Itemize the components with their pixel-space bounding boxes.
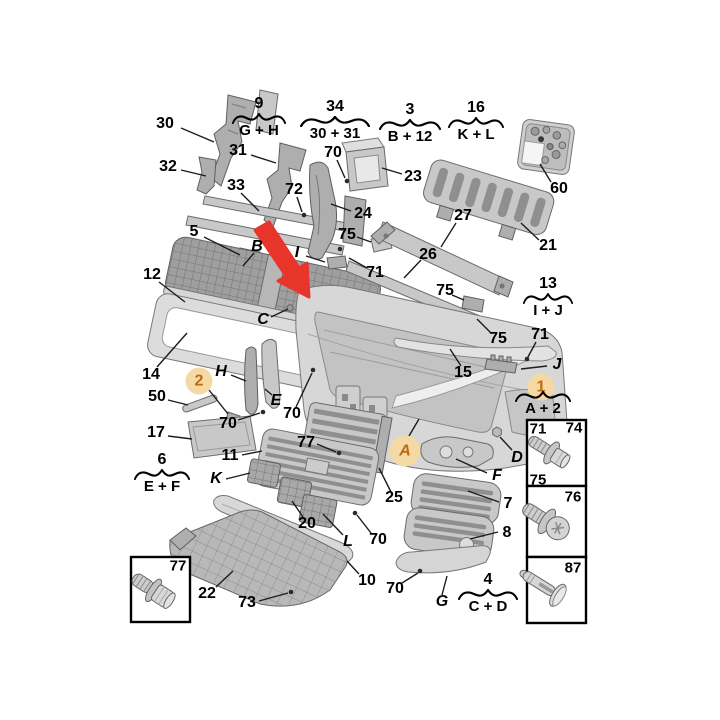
- assembly-34-number: 34: [326, 99, 344, 115]
- callout-L: L: [343, 534, 353, 550]
- callout-7: 7: [504, 496, 513, 512]
- callout-33: 33: [227, 178, 245, 194]
- callout-70-4: 70: [369, 532, 387, 548]
- box-label-75: 75: [530, 472, 547, 489]
- highlight-ref-2: 2: [186, 368, 213, 395]
- part-mesh-K: [247, 458, 281, 487]
- assembly-6-number: 6: [158, 452, 167, 468]
- callout-5: 5: [190, 224, 199, 240]
- callout-H: H: [215, 364, 227, 380]
- highlight-ref-A: A: [390, 436, 421, 467]
- callout-B: B: [251, 239, 263, 255]
- assembly-9: 9 G + H: [232, 96, 286, 138]
- callout-G: G: [436, 594, 448, 610]
- callout-31: 31: [229, 143, 247, 159]
- box-label-87: 87: [565, 560, 582, 577]
- callout-I: I: [295, 245, 299, 261]
- callout-23: 23: [404, 169, 422, 185]
- box-label-76: 76: [565, 489, 582, 506]
- callout-30: 30: [156, 116, 174, 132]
- callout-20: 20: [298, 516, 316, 532]
- box-label-77: 77: [170, 558, 187, 575]
- callout-E: E: [271, 393, 282, 409]
- callout-15: 15: [454, 365, 472, 381]
- callout-D: D: [511, 450, 523, 466]
- callout-C: C: [257, 312, 269, 328]
- callout-72: 72: [285, 182, 303, 198]
- part-duct-23: [342, 138, 388, 191]
- callout-32: 32: [159, 159, 177, 175]
- callout-8: 8: [503, 525, 512, 541]
- callout-26: 26: [419, 247, 437, 263]
- assembly-16-number: 16: [467, 100, 485, 116]
- assembly-3-components: B + 12: [388, 129, 433, 144]
- callout-75-2: 75: [436, 283, 454, 299]
- assembly-13-components: I + J: [533, 303, 563, 318]
- assembly-6: 6 E + F: [134, 452, 190, 494]
- assembly-3-number: 3: [406, 102, 415, 118]
- assembly-1-components-text: A + 2: [525, 401, 561, 416]
- callout-70-5: 70: [386, 581, 404, 597]
- callout-73: 73: [238, 595, 256, 611]
- callout-J: J: [553, 357, 562, 373]
- assembly-9-number: 9: [255, 96, 264, 112]
- callout-12: 12: [143, 267, 161, 283]
- assembly-16-components: K + L: [457, 127, 494, 142]
- part-lip-G: [396, 546, 490, 573]
- assembly-1-components: A + 2: [515, 390, 571, 416]
- callout-K: K: [210, 471, 222, 487]
- callout-22: 22: [198, 586, 216, 602]
- assembly-13-number: 13: [539, 276, 557, 292]
- callout-77-1: 77: [297, 435, 315, 451]
- part-blade-H: [245, 347, 259, 414]
- callout-75-1: 75: [338, 227, 356, 243]
- parts-diagram-page: 30 31 32 33 70 23 60 72 24 75 27 21 5 26…: [0, 0, 720, 720]
- part-rod-50: [182, 394, 218, 413]
- part-clip-I: [327, 256, 347, 269]
- callout-F: F: [492, 468, 502, 484]
- callout-10: 10: [358, 573, 376, 589]
- callout-21: 21: [539, 238, 557, 254]
- callout-50: 50: [148, 389, 166, 405]
- callout-14: 14: [142, 367, 160, 383]
- callout-70-3: 70: [219, 416, 237, 432]
- assembly-9-components: G + H: [239, 123, 279, 138]
- callout-71-1: 71: [366, 265, 384, 281]
- callout-71-2: 71: [531, 327, 549, 343]
- assembly-6-components: E + F: [144, 479, 180, 494]
- callout-60: 60: [550, 181, 568, 197]
- assembly-34-components: 30 + 31: [310, 126, 360, 141]
- callout-24: 24: [354, 206, 372, 222]
- box-label-74: 74: [566, 420, 583, 437]
- assembly-13: 13 I + J: [523, 276, 573, 318]
- assembly-4-number: 4: [484, 572, 493, 588]
- box-label-71: 71: [530, 421, 547, 438]
- assembly-4-components: C + D: [469, 599, 508, 614]
- callout-25: 25: [385, 490, 403, 506]
- assembly-34: 34 30 + 31: [300, 99, 370, 141]
- callout-27: 27: [454, 208, 472, 224]
- callout-11: 11: [222, 448, 239, 464]
- assembly-4: 4 C + D: [458, 572, 518, 614]
- assembly-3: 3 B + 12: [379, 102, 441, 144]
- part-clip-box-60: [517, 119, 575, 176]
- callout-70-1: 70: [324, 145, 342, 161]
- part-clip-C: [287, 305, 293, 311]
- part-nut-D: [493, 427, 502, 437]
- assembly-16: 16 K + L: [448, 100, 504, 142]
- callout-17: 17: [147, 425, 165, 441]
- callout-75-3: 75: [489, 331, 507, 347]
- callout-70-2: 70: [283, 406, 301, 422]
- part-bracket-32: [197, 157, 216, 194]
